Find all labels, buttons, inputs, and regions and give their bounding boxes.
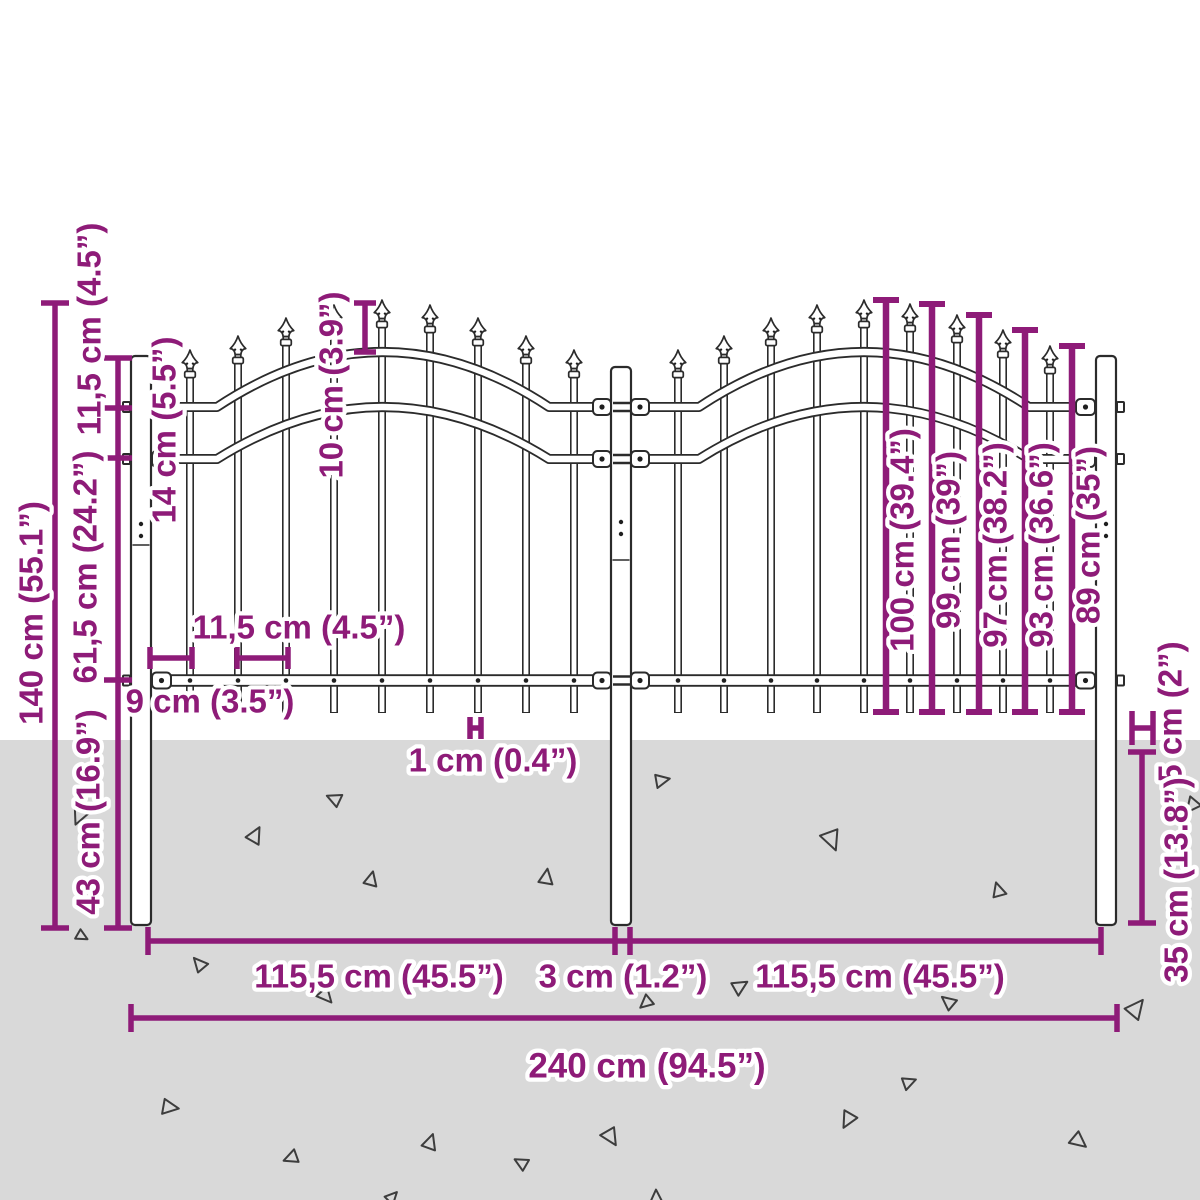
dim-label-picket-spacing: 11,5 cm (4.5”) (193, 609, 406, 646)
dim-label-mid-height: 61,5 cm (24.2”) (67, 451, 104, 684)
dim-label-finial-height: 10 cm (3.9”) (313, 291, 350, 478)
dim-label-post-depth: 35 cm (13.8”) (1158, 777, 1195, 982)
rail-bolt (676, 678, 681, 683)
dim-label-center-post-gap: 3 cm (1.2”) (539, 958, 708, 995)
rail-bolt (1048, 678, 1053, 683)
spear-finial-icon (670, 350, 686, 378)
spear-finial-icon (230, 336, 246, 364)
dim-label-post-to-picket: 9 cm (3.5”) (126, 683, 295, 720)
dim-label-left-section-width: 115,5 cm (45.5”) (254, 958, 504, 995)
dim-label-picket-height-93: 93 cm (36.6”) (1023, 442, 1060, 647)
spear-finial-icon (470, 318, 486, 346)
rail-bolt (769, 678, 774, 683)
rail-bolt (476, 678, 481, 683)
spear-finial-icon (716, 336, 732, 364)
spear-finial-icon (278, 318, 294, 346)
dim-label-post-top-offset: 11,5 cm (4.5”) (71, 223, 108, 436)
spear-finial-icon (809, 305, 825, 333)
spear-finial-icon (566, 350, 582, 378)
spear-finial-icon (902, 304, 918, 332)
dim-picket-spacing (150, 647, 288, 669)
rail-bolt (722, 678, 727, 683)
dim-label-post-ground-gap: 5 cm (2”) (1152, 641, 1189, 782)
dim-label-total-height: 140 cm (55.1”) (13, 501, 50, 725)
dim-label-rail-spacing: 14 cm (5.5”) (146, 336, 183, 523)
spear-finial-icon (374, 300, 390, 328)
dim-label-right-section-width: 115,5 cm (45.5”) (755, 958, 1005, 995)
rail-bolt (380, 678, 385, 683)
rail-bolt (1001, 678, 1006, 683)
picket (809, 305, 825, 713)
dim-label-picket-height-97: 97 cm (38.2”) (977, 442, 1014, 647)
picket (763, 318, 779, 713)
dim-label-picket-height-100: 100 cm (39.4”) (884, 428, 921, 652)
spear-finial-icon (182, 350, 198, 378)
picket (856, 300, 872, 713)
picket (422, 305, 438, 713)
bolt-nub (1117, 454, 1124, 464)
rail-bolt (428, 678, 433, 683)
center-post (611, 367, 631, 925)
rail-bolt (332, 678, 337, 683)
dim-label-picket-height-99: 99 cm (39”) (930, 451, 967, 629)
spear-finial-icon (1042, 346, 1058, 374)
right-post (1096, 356, 1116, 925)
picket (374, 300, 390, 713)
rail-bolt (862, 678, 867, 683)
diagram-canvas: 140 cm (55.1”) 11,5 cm (4.5”) 14 cm (5.5… (0, 0, 1200, 1200)
spear-finial-icon (763, 318, 779, 346)
fence-dimension-diagram: 140 cm (55.1”) 11,5 cm (4.5”) 14 cm (5.5… (0, 0, 1200, 1200)
dim-picket-width (470, 717, 481, 739)
rail-bolt (955, 678, 960, 683)
dim-label-total-width: 240 cm (94.5”) (528, 1047, 765, 1086)
spear-finial-icon (856, 300, 872, 328)
dim-finial-height (354, 303, 376, 352)
rail-bolt (572, 678, 577, 683)
spear-finial-icon (995, 330, 1011, 358)
rail-bolt (908, 678, 913, 683)
spear-finial-icon (518, 336, 534, 364)
dim-label-lower-height: 43 cm (16.9”) (70, 709, 107, 914)
rail-bolt (815, 678, 820, 683)
bolt-nub (1117, 402, 1124, 412)
dim-label-picket-height-89: 89 cm (35”) (1070, 446, 1107, 624)
bolt-nub (1117, 676, 1124, 686)
rail-bolt (524, 678, 529, 683)
dim-label-picket-width: 1 cm (0.4”) (409, 742, 578, 779)
spear-finial-icon (949, 315, 965, 343)
spear-finial-icon (422, 305, 438, 333)
dim-post-ground-gap (1132, 711, 1153, 745)
